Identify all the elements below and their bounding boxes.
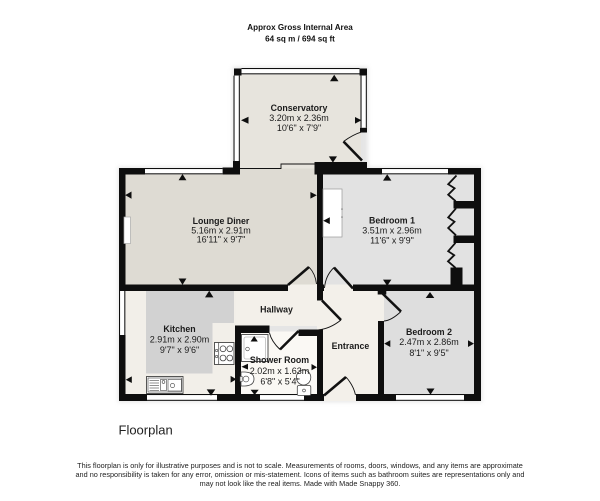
svg-text:and no responsibility is taken: and no responsibility is taken for any e… [76,470,525,479]
svg-text:9'7" x 9'6": 9'7" x 9'6" [160,345,199,355]
svg-text:Approx Gross Internal Area: Approx Gross Internal Area [247,23,353,32]
svg-text:This floorplan is only for ill: This floorplan is only for illustrative … [77,461,523,470]
svg-text:11'6" x 9'9": 11'6" x 9'9" [370,235,414,245]
svg-text:Bedroom 1: Bedroom 1 [369,216,415,226]
svg-text:2.47m x 2.86m: 2.47m x 2.86m [399,337,459,347]
svg-text:Shower Room: Shower Room [250,355,309,365]
svg-text:16'11" x 9'7": 16'11" x 9'7" [197,235,246,245]
svg-text:3.51m x 2.96m: 3.51m x 2.96m [362,225,422,235]
svg-text:2.91m x 2.90m: 2.91m x 2.90m [150,334,210,344]
svg-text:Hallway: Hallway [260,305,293,315]
svg-text:6'8" x 5'4": 6'8" x 5'4" [260,377,299,387]
svg-text:2.02m x 1.63m: 2.02m x 1.63m [250,366,310,376]
svg-text:Floorplan: Floorplan [119,423,173,438]
svg-text:Kitchen: Kitchen [163,324,195,334]
svg-text:Bedroom 2: Bedroom 2 [406,327,452,337]
svg-text:Conservatory: Conservatory [271,103,328,113]
svg-text:10'6" x 7'9": 10'6" x 7'9" [277,123,321,133]
svg-text:may not look like the real ite: may not look like the real items. Made w… [200,479,401,488]
svg-text:Entrance: Entrance [332,341,370,351]
svg-text:3.20m x 2.36m: 3.20m x 2.36m [269,113,329,123]
svg-text:64 sq m / 694 sq ft: 64 sq m / 694 sq ft [265,35,335,44]
svg-text:8'1" x 9'5": 8'1" x 9'5" [409,348,448,358]
